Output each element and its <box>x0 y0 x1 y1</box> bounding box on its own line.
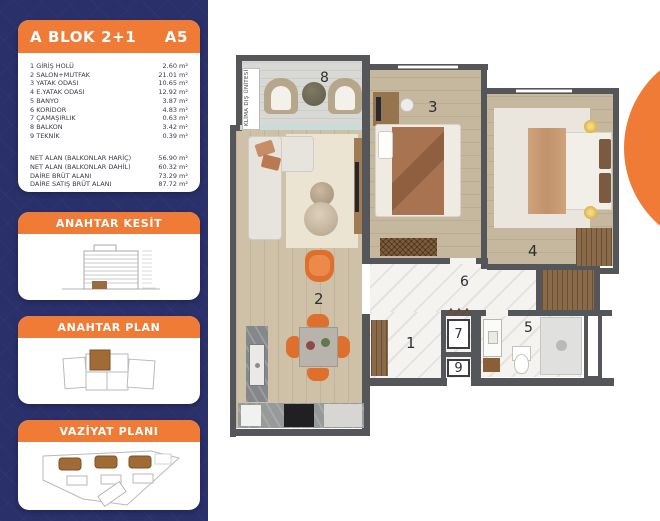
unit-info-card: A BLOK 2+1 A5 1 GİRİŞ HOLÜ2.60 m² 2 SALO… <box>18 20 200 192</box>
room-label: 7 ÇAMAŞIRLIK <box>30 114 76 123</box>
room-list-item: 2 SALON+MUTFAK21.01 m² <box>30 71 188 80</box>
room-number-8: 8 <box>320 70 329 86</box>
stove <box>284 404 314 427</box>
room-area: 0.63 m² <box>163 114 188 123</box>
key-plan-card: ANAHTAR PLAN <box>18 316 200 404</box>
room-number-4: 4 <box>528 242 538 260</box>
sink-cabinet <box>483 358 500 372</box>
floor-plan: KLİMA DIŞ ÜNİTESİ 8 2 3 <box>228 14 648 469</box>
wall-segment <box>441 352 481 357</box>
sink-basin <box>488 331 498 344</box>
room-number-5: 5 <box>524 320 533 336</box>
desk-chair <box>400 98 414 112</box>
room-list-item: 7 ÇAMAŞIRLIK0.63 m² <box>30 114 188 123</box>
wall-lamp <box>584 120 597 133</box>
desk <box>373 92 399 126</box>
unit-info-header: A BLOK 2+1 A5 <box>18 20 200 53</box>
plate <box>321 338 330 347</box>
door-opening <box>450 258 476 264</box>
room-list: 1 GİRİŞ HOLÜ2.60 m² 2 SALON+MUTFAK21.01 … <box>18 53 200 140</box>
room-area: 2.60 m² <box>163 62 188 71</box>
page: { "colors": { "navy": "#2a3069", "orange… <box>0 0 660 521</box>
key-plan-body <box>18 338 200 404</box>
room-number-9: 9 <box>454 361 462 376</box>
single-bed <box>375 124 461 217</box>
area-summary: NET ALAN (BALKONLAR HARİÇ)56.90 m² NET A… <box>18 140 200 189</box>
shower-drain <box>556 340 567 351</box>
fridge <box>324 404 362 427</box>
wall-lamp <box>584 206 597 219</box>
room-list-item: 4 E.YATAK ODASI12.92 m² <box>30 88 188 97</box>
bed-throw <box>528 128 566 214</box>
summary-item: NET ALAN (BALKONLAR DAHİL)60.32 m² <box>30 163 188 172</box>
room-number-1: 1 <box>406 334 416 352</box>
computer-monitor <box>376 97 381 121</box>
highlighted-unit <box>90 350 110 370</box>
key-plan-header: ANAHTAR PLAN <box>18 316 200 338</box>
block-title: A BLOK 2+1 <box>30 28 136 46</box>
pillow <box>599 173 611 203</box>
door-opening <box>486 310 508 316</box>
plate <box>306 341 315 350</box>
faucet <box>255 363 260 368</box>
entrance-door-opening <box>447 378 471 386</box>
entry-closet <box>371 320 388 376</box>
wall-segment <box>441 310 446 386</box>
dining-table <box>299 327 338 367</box>
key-section-card: ANAHTAR KESİT <box>18 212 200 300</box>
dishwasher <box>241 405 261 426</box>
wall-segment <box>364 378 614 386</box>
dining-chair <box>286 336 299 358</box>
site-block-a <box>59 458 81 470</box>
key-section-header: ANAHTAR KESİT <box>18 212 200 234</box>
pillow <box>599 139 611 169</box>
ac-outdoor-unit-label: KLİMA DIŞ ÜNİTESİ <box>242 68 260 130</box>
site-plan-card: VAZİYAT PLANI <box>18 420 200 510</box>
key-section-body <box>18 234 200 300</box>
coffee-table <box>304 202 338 236</box>
kitchen-sink <box>249 344 265 386</box>
window <box>398 65 458 69</box>
room-number-7-box: 7 <box>447 319 470 349</box>
room-list-item: 9 TEKNİK0.39 m² <box>30 132 188 141</box>
bed-blanket <box>392 127 444 215</box>
room-area: 0.39 m² <box>163 132 188 141</box>
balcony-lounge-chair <box>328 78 362 114</box>
dining-chair <box>337 336 350 358</box>
wall-segment <box>236 55 370 61</box>
room-label: 6 KORİDOR <box>30 106 66 115</box>
room-number-2: 2 <box>314 290 324 308</box>
room-area: 10.65 m² <box>158 79 188 88</box>
room-list-item: 6 KORİDOR4.83 m² <box>30 106 188 115</box>
pillow <box>378 131 393 159</box>
highlighted-floor <box>92 281 107 289</box>
dresser <box>380 238 437 256</box>
wall-segment <box>362 55 370 264</box>
dining-chair <box>307 368 329 381</box>
light-shaft-window <box>584 312 602 380</box>
unit-code: A5 <box>165 28 188 46</box>
wall-segment <box>230 429 370 436</box>
building-section-diagram <box>34 238 184 296</box>
wall-segment <box>471 310 481 386</box>
room-area: 21.01 m² <box>158 71 188 80</box>
site-block-b <box>95 456 117 468</box>
wall-segment <box>487 264 540 270</box>
shower <box>540 317 582 375</box>
summary-item: DAİRE SATIŞ BRÜT ALANI87.72 m² <box>30 180 188 189</box>
kitchen-counter-bottom <box>238 403 364 428</box>
room-area: 4.83 m² <box>163 106 188 115</box>
armchair-cushion <box>309 255 330 276</box>
wall-segment <box>613 88 619 274</box>
site-block-c <box>129 456 151 468</box>
tv-console <box>354 138 362 234</box>
room-label: 3 YATAK ODASI <box>30 79 78 88</box>
window <box>516 89 572 93</box>
closet-zigzag-icon <box>446 307 472 316</box>
site-plan-body <box>18 442 200 510</box>
room-area: 3.87 m² <box>163 97 188 106</box>
bathroom-sink <box>483 319 502 357</box>
room-list-item: 1 GİRİŞ HOLÜ2.60 m² <box>30 62 188 71</box>
room-area: 3.42 m² <box>163 123 188 132</box>
site-plan-diagram <box>29 446 189 508</box>
site-plan-header: VAZİYAT PLANI <box>18 420 200 442</box>
room-number-6: 6 <box>460 274 469 290</box>
toilet-bowl <box>514 354 529 374</box>
wall-segment <box>230 125 236 437</box>
summary-item: NET ALAN (BALKONLAR HARİÇ)56.90 m² <box>30 154 188 163</box>
tv-screen <box>355 162 359 212</box>
chair-cushion <box>335 86 355 110</box>
room-list-item: 8 BALKON3.42 m² <box>30 123 188 132</box>
room-label: 5 BANYO <box>30 97 59 106</box>
room-label: 4 E.YATAK ODASI <box>30 88 85 97</box>
armchair <box>305 250 334 282</box>
room-list-item: 5 BANYO3.87 m² <box>30 97 188 106</box>
room-number-9-box: 9 <box>447 359 470 377</box>
room-label: 1 GİRİŞ HOLÜ <box>30 62 74 71</box>
room-label: 8 BALKON <box>30 123 63 132</box>
wall-segment <box>481 64 487 269</box>
room-label: 2 SALON+MUTFAK <box>30 71 90 80</box>
room-number-3: 3 <box>428 98 438 116</box>
room-number-7: 7 <box>454 327 462 342</box>
balcony-lounge-chair <box>264 78 298 114</box>
room-area: 12.92 m² <box>158 88 188 97</box>
room-list-item: 3 YATAK ODASI10.65 m² <box>30 79 188 88</box>
wardrobe <box>542 270 594 310</box>
wardrobe <box>576 228 612 266</box>
dining-chair <box>307 314 329 327</box>
key-plan-diagram <box>34 342 184 400</box>
chair-cushion <box>271 86 291 110</box>
room-label: 9 TEKNİK <box>30 132 60 141</box>
kitchen-counter <box>246 326 268 402</box>
corridor-floor <box>370 264 536 312</box>
wall-segment <box>594 268 600 316</box>
